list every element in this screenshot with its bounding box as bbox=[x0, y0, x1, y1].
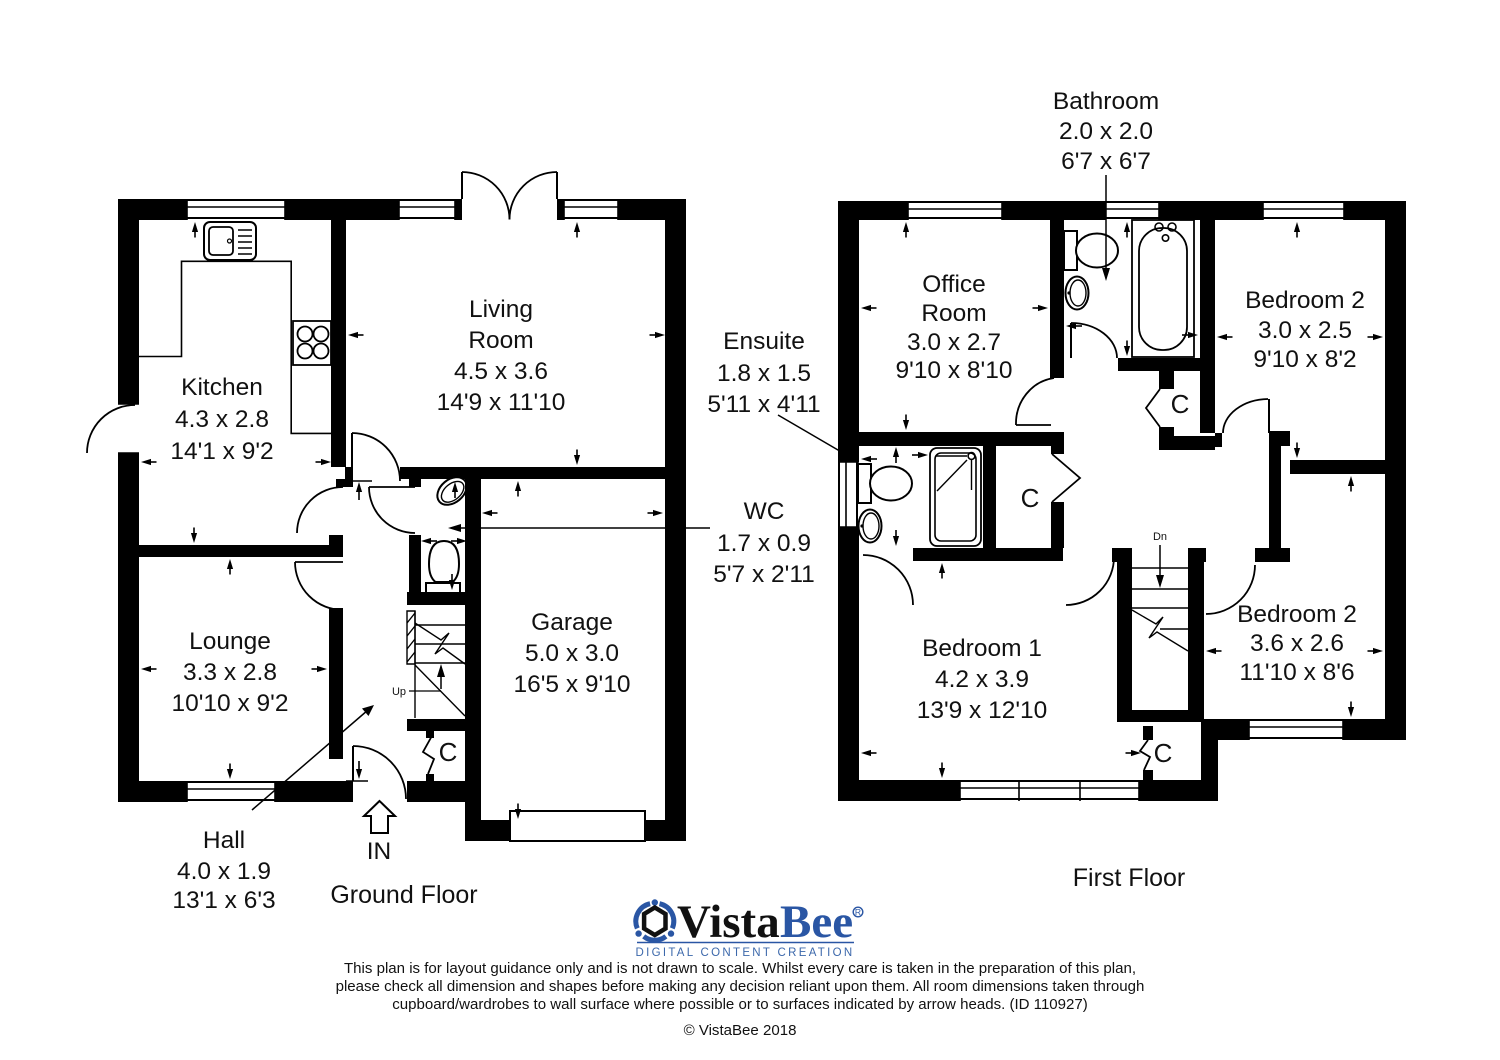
svg-text:Office: Office bbox=[922, 271, 986, 298]
svg-text:This plan is for layout guidan: This plan is for layout guidance only an… bbox=[344, 960, 1136, 977]
svg-text:2.0 x 2.0: 2.0 x 2.0 bbox=[1059, 118, 1153, 145]
svg-text:14'1 x 9'2: 14'1 x 9'2 bbox=[170, 438, 273, 465]
svg-text:Vista: Vista bbox=[677, 896, 780, 948]
svg-text:6'7 x 6'7: 6'7 x 6'7 bbox=[1061, 148, 1151, 175]
svg-text:Bee: Bee bbox=[780, 896, 853, 948]
svg-text:C: C bbox=[1021, 483, 1040, 513]
svg-text:Bedroom 2: Bedroom 2 bbox=[1245, 287, 1365, 314]
svg-text:First Floor: First Floor bbox=[1073, 864, 1186, 892]
svg-text:4.5 x 3.6: 4.5 x 3.6 bbox=[454, 358, 548, 385]
svg-text:5'7 x 2'11: 5'7 x 2'11 bbox=[713, 561, 815, 588]
svg-text:Bathroom: Bathroom bbox=[1053, 88, 1159, 115]
svg-text:C: C bbox=[1154, 738, 1173, 768]
svg-text:1.8 x 1.5: 1.8 x 1.5 bbox=[717, 360, 811, 387]
svg-text:Room: Room bbox=[921, 300, 986, 327]
svg-text:5.0 x 3.0: 5.0 x 3.0 bbox=[525, 640, 619, 667]
svg-text:9'10 x 8'2: 9'10 x 8'2 bbox=[1253, 346, 1356, 373]
svg-text:4.2 x 3.9: 4.2 x 3.9 bbox=[935, 666, 1029, 693]
svg-text:Up: Up bbox=[392, 686, 406, 698]
svg-text:Ensuite: Ensuite bbox=[723, 328, 805, 355]
svg-text:3.0 x 2.5: 3.0 x 2.5 bbox=[1258, 317, 1352, 344]
svg-text:DIGITAL CONTENT CREATION: DIGITAL CONTENT CREATION bbox=[636, 947, 855, 959]
svg-text:Bedroom 1: Bedroom 1 bbox=[922, 635, 1042, 662]
svg-text:10'10 x 9'2: 10'10 x 9'2 bbox=[172, 690, 289, 717]
svg-text:14'9 x 11'10: 14'9 x 11'10 bbox=[437, 389, 566, 416]
svg-text:1.7 x 0.9: 1.7 x 0.9 bbox=[717, 530, 811, 557]
svg-text:please check all dimension and: please check all dimension and shapes be… bbox=[336, 978, 1145, 995]
svg-text:Dn: Dn bbox=[1153, 531, 1167, 543]
svg-text:Bedroom 2: Bedroom 2 bbox=[1237, 601, 1357, 628]
svg-text:3.6 x 2.6: 3.6 x 2.6 bbox=[1250, 630, 1344, 657]
svg-text:Garage: Garage bbox=[531, 609, 613, 636]
svg-text:C: C bbox=[1171, 389, 1190, 419]
svg-text:R: R bbox=[855, 907, 861, 917]
svg-text:16'5 x 9'10: 16'5 x 9'10 bbox=[514, 671, 631, 698]
svg-text:13'1 x 6'3: 13'1 x 6'3 bbox=[172, 887, 275, 914]
svg-text:4.0 x 1.9: 4.0 x 1.9 bbox=[177, 858, 271, 885]
svg-text:13'9 x 12'10: 13'9 x 12'10 bbox=[917, 697, 1048, 724]
svg-text:11'10 x 8'6: 11'10 x 8'6 bbox=[1239, 659, 1354, 686]
svg-text:3.3 x 2.8: 3.3 x 2.8 bbox=[183, 659, 277, 686]
svg-text:IN: IN bbox=[367, 838, 392, 865]
svg-text:C: C bbox=[439, 737, 458, 767]
svg-text:Room: Room bbox=[468, 327, 533, 354]
svg-text:© VistaBee 2018: © VistaBee 2018 bbox=[684, 1022, 797, 1039]
svg-text:cupboard/wardrobes to wall sur: cupboard/wardrobes to wall surface where… bbox=[392, 996, 1088, 1013]
svg-text:Kitchen: Kitchen bbox=[181, 374, 263, 401]
svg-text:3.0 x 2.7: 3.0 x 2.7 bbox=[907, 329, 1001, 356]
svg-text:Hall: Hall bbox=[203, 827, 245, 854]
svg-text:9'10 x 8'10: 9'10 x 8'10 bbox=[896, 357, 1013, 384]
svg-text:WC: WC bbox=[744, 498, 785, 525]
svg-text:Lounge: Lounge bbox=[189, 628, 271, 655]
svg-text:5'11 x 4'11: 5'11 x 4'11 bbox=[707, 391, 820, 418]
svg-text:Ground Floor: Ground Floor bbox=[330, 881, 477, 909]
svg-text:4.3 x 2.8: 4.3 x 2.8 bbox=[175, 406, 269, 433]
svg-text:Living: Living bbox=[469, 296, 533, 323]
